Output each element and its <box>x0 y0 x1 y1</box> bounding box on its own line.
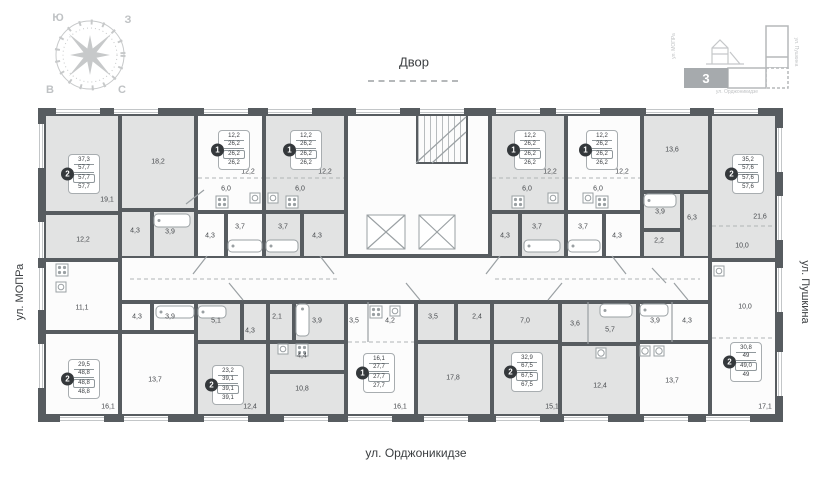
window <box>38 222 44 258</box>
room <box>44 260 120 332</box>
apartment-area-line: 23,2 <box>218 368 238 376</box>
room-area-label: 3,9 <box>165 314 175 321</box>
room-area-label: 4,2 <box>385 318 395 325</box>
apartment-info-card[interactable]: 237,357,757,757,7 <box>68 154 100 194</box>
window <box>60 416 104 422</box>
room-area-label: 10,0 <box>735 243 749 250</box>
apartment-rooms-badge: 2 <box>61 168 74 181</box>
room <box>604 212 642 260</box>
apartment-rooms-badge: 1 <box>356 367 369 380</box>
room <box>268 302 294 342</box>
apartment-area-line: 57,7 <box>73 174 95 183</box>
room-area-label: 4,3 <box>130 228 140 235</box>
room <box>566 212 604 260</box>
window <box>646 108 690 114</box>
room-area-label: 3,9 <box>165 229 175 236</box>
room <box>638 302 710 342</box>
apartment-area-line: 26,2 <box>296 160 316 167</box>
room-area-label: 3,9 <box>655 209 665 216</box>
room-area-label: 6,0 <box>522 186 532 193</box>
apartment-area-line: 12,2 <box>592 133 612 141</box>
room-area-label: 6,0 <box>593 186 603 193</box>
window <box>56 108 100 114</box>
apartment-rooms-badge: 2 <box>504 366 517 379</box>
apartment-area-line: 12,2 <box>520 133 540 141</box>
apartment-area-line: 67,5 <box>517 382 537 389</box>
window <box>556 108 600 114</box>
window <box>777 128 783 172</box>
window <box>204 416 248 422</box>
room-area-label: 3,5 <box>428 314 438 321</box>
room-area-label: 6,0 <box>295 186 305 193</box>
window <box>38 268 44 310</box>
room-area-label: 3,5 <box>349 318 359 325</box>
room-area-label: 3,9 <box>312 318 322 325</box>
apartment-area-line: 27,7 <box>368 373 390 382</box>
room <box>120 210 152 260</box>
room-area-label: 10,0 <box>738 304 752 311</box>
room <box>710 260 777 416</box>
room <box>682 192 710 260</box>
room-area-label: 16,1 <box>101 404 115 411</box>
room-area-label: 3,7 <box>235 224 245 231</box>
room <box>120 332 196 416</box>
room-area-label: 3,7 <box>578 224 588 231</box>
apartment-area-line: 49,0 <box>735 362 757 371</box>
floor-plan: 18,219,112,24,33,912,26,04,33,712,26,03,… <box>0 0 827 479</box>
room-area-label: 4,3 <box>132 314 142 321</box>
apartment-area-line: 12,2 <box>224 133 244 141</box>
apartment-info-card[interactable]: 112,226,226,226,2 <box>218 130 250 170</box>
apartment-area-line: 26,2 <box>224 141 244 149</box>
room-area-label: 3,7 <box>532 224 542 231</box>
apartment-info-card[interactable]: 223,239,139,139,1 <box>212 365 244 405</box>
window <box>496 108 540 114</box>
room-area-label: 10,8 <box>295 386 309 393</box>
window <box>714 108 758 114</box>
apartment-info-card[interactable]: 235,257,657,657,6 <box>732 154 764 194</box>
room <box>456 302 492 342</box>
apartment-area-line: 49 <box>736 372 756 379</box>
apartment-rooms-badge: 1 <box>283 144 296 157</box>
apartment-area-line: 57,6 <box>738 184 758 191</box>
apartment-area-line: 49 <box>736 353 756 361</box>
room-area-label: 13,6 <box>665 147 679 154</box>
room-area-label: 4,3 <box>312 233 322 240</box>
window <box>777 352 783 396</box>
room-area-label: 17,1 <box>758 404 772 411</box>
room-area-label: 12,4 <box>243 404 257 411</box>
apartment-area-line: 26,2 <box>592 160 612 167</box>
room-area-label: 11,1 <box>75 305 88 312</box>
window <box>268 108 312 114</box>
room-area-label: 3,7 <box>278 224 288 231</box>
room <box>242 302 268 342</box>
room-area-label: 2,2 <box>654 238 664 245</box>
room-area-label: 18,2 <box>151 159 165 166</box>
room <box>268 372 346 416</box>
apartment-area-line: 26,2 <box>520 141 540 149</box>
apartment-info-card[interactable]: 112,226,226,226,2 <box>290 130 322 170</box>
room-area-label: 21,6 <box>753 214 767 221</box>
apartment-rooms-badge: 2 <box>723 356 736 369</box>
apartment-info-card[interactable]: 229,548,848,848,8 <box>68 359 100 399</box>
room-area-label: 2,1 <box>272 314 282 321</box>
apartment-area-line: 26,2 <box>519 150 541 159</box>
floor-plan-page: Ю З В С Двор 3 ул. МОПРа ул. Пушкина ул.… <box>0 0 827 479</box>
window <box>284 416 328 422</box>
room-area-label: 12,2 <box>615 169 629 176</box>
apartment-area-line: 32,9 <box>517 355 537 363</box>
apartment-area-line: 26,2 <box>223 150 245 159</box>
room-area-label: 6,0 <box>221 186 231 193</box>
apartment-area-line: 57,6 <box>737 174 759 183</box>
window <box>644 416 688 422</box>
room-area-label: 15,1 <box>545 404 559 411</box>
room-area-label: 2,4 <box>472 314 482 321</box>
apartment-area-line: 57,7 <box>74 165 94 173</box>
apartment-area-line: 67,5 <box>517 363 537 371</box>
apartment-area-line: 26,2 <box>295 150 317 159</box>
room <box>416 114 468 164</box>
window <box>420 108 464 114</box>
room <box>264 212 302 260</box>
apartment-area-line: 26,2 <box>296 141 316 149</box>
room-area-label: 7,0 <box>520 318 530 325</box>
room-area-label: 16,1 <box>393 404 407 411</box>
apartment-area-line: 39,1 <box>217 385 239 394</box>
window <box>496 416 540 422</box>
apartment-rooms-badge: 2 <box>61 373 74 386</box>
room-area-label: 3,6 <box>570 321 580 328</box>
window <box>38 124 44 168</box>
window <box>777 196 783 240</box>
apartment-area-line: 29,5 <box>74 362 94 370</box>
apartment-area-line: 37,3 <box>74 157 94 165</box>
apartment-rooms-badge: 1 <box>507 144 520 157</box>
apartment-area-line: 67,5 <box>516 372 538 381</box>
apartment-area-line: 30,8 <box>736 345 756 353</box>
apartment-area-line: 26,2 <box>520 160 540 167</box>
room-area-label: 4,3 <box>205 233 215 240</box>
window <box>114 108 158 114</box>
room <box>416 302 456 342</box>
room-area-label: 5,7 <box>605 327 615 334</box>
apartment-area-line: 35,2 <box>738 157 758 165</box>
room <box>520 212 566 260</box>
window <box>348 416 392 422</box>
room <box>120 256 710 302</box>
window <box>38 344 44 388</box>
room-area-label: 5,1 <box>211 318 221 325</box>
window <box>204 108 248 114</box>
room-area-label: 13,7 <box>665 378 679 385</box>
apartment-area-line: 12,2 <box>296 133 316 141</box>
apartment-rooms-badge: 2 <box>205 379 218 392</box>
apartment-info-card[interactable]: 112,226,226,226,2 <box>514 130 546 170</box>
window <box>777 268 783 312</box>
apartment-info-card[interactable]: 112,226,226,226,2 <box>586 130 618 170</box>
room-area-label: 13,7 <box>148 377 162 384</box>
room-area-label: 3,9 <box>650 318 660 325</box>
apartment-area-line: 48,8 <box>74 389 94 396</box>
apartment-info-card[interactable]: 232,967,567,567,5 <box>511 352 543 392</box>
apartment-area-line: 26,2 <box>591 150 613 159</box>
apartment-area-line: 48,8 <box>73 379 95 388</box>
room <box>226 212 264 260</box>
room-area-label: 4,3 <box>612 233 622 240</box>
window <box>564 416 608 422</box>
room-area-label: 12,2 <box>76 237 90 244</box>
apartment-area-line: 27,7 <box>369 364 389 372</box>
apartment-info-card[interactable]: 116,127,727,727,7 <box>363 353 395 393</box>
room-area-label: 4,3 <box>682 318 692 325</box>
room <box>560 344 638 416</box>
room-area-label: 4,3 <box>245 328 255 335</box>
apartment-rooms-badge: 2 <box>725 168 738 181</box>
apartment-area-line: 26,2 <box>592 141 612 149</box>
apartment-area-line: 57,6 <box>738 165 758 173</box>
room-area-label: 12,2 <box>543 169 557 176</box>
apartment-rooms-badge: 1 <box>579 144 592 157</box>
room-area-label: 4,4 <box>297 353 307 360</box>
window <box>124 416 168 422</box>
apartment-area-line: 57,7 <box>74 184 94 191</box>
apartment-info-card[interactable]: 230,84949,049 <box>730 342 762 382</box>
room-area-label: 12,2 <box>318 169 332 176</box>
apartment-area-line: 27,7 <box>369 383 389 390</box>
window <box>356 108 400 114</box>
room-area-label: 17,8 <box>446 375 460 382</box>
apartment-area-line: 39,1 <box>218 376 238 384</box>
room-area-label: 6,3 <box>687 215 697 222</box>
apartment-area-line: 16,1 <box>369 356 389 364</box>
apartment-rooms-badge: 1 <box>211 144 224 157</box>
apartment-area-line: 26,2 <box>224 160 244 167</box>
apartment-area-line: 39,1 <box>218 395 238 402</box>
apartment-area-line: 48,8 <box>74 370 94 378</box>
window <box>706 416 750 422</box>
room <box>302 212 346 260</box>
room-area-label: 4,3 <box>500 233 510 240</box>
window <box>424 416 468 422</box>
room-area-label: 12,4 <box>593 383 607 390</box>
room-area-label: 19,1 <box>100 197 114 204</box>
